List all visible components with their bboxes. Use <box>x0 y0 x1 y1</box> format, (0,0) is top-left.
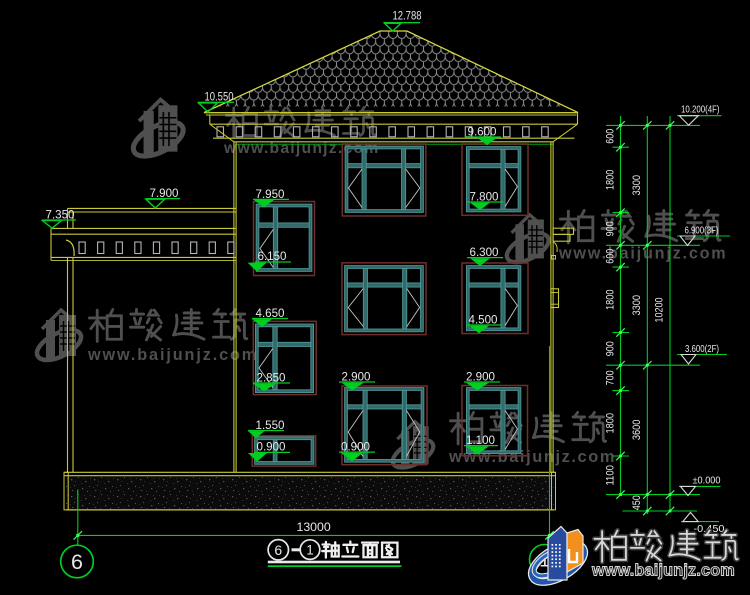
svg-text:6: 6 <box>71 550 83 574</box>
svg-text:1800: 1800 <box>605 170 617 191</box>
svg-text:6.900(3F): 6.900(3F) <box>685 226 719 237</box>
svg-text:10200: 10200 <box>654 297 666 322</box>
svg-text:700: 700 <box>605 370 617 385</box>
svg-text:3.600(2F): 3.600(2F) <box>685 344 719 355</box>
svg-text:7.950: 7.950 <box>256 187 285 201</box>
svg-text:www.baijunjz.com: www.baijunjz.com <box>591 562 735 580</box>
svg-text:13000: 13000 <box>297 520 331 534</box>
svg-text:900: 900 <box>605 221 617 236</box>
svg-text:7.900: 7.900 <box>150 186 179 200</box>
svg-text:www.baijunjz.com: www.baijunjz.com <box>87 346 258 364</box>
svg-text:6: 6 <box>274 542 282 558</box>
svg-text:7.800: 7.800 <box>470 189 499 203</box>
svg-text:3600: 3600 <box>631 420 643 441</box>
svg-text:12.788: 12.788 <box>393 9 422 23</box>
svg-text:4.500: 4.500 <box>469 312 498 326</box>
svg-text:3300: 3300 <box>631 295 643 316</box>
svg-text:600: 600 <box>605 129 617 144</box>
svg-text:1.100: 1.100 <box>466 433 495 447</box>
svg-text:3300: 3300 <box>631 175 643 196</box>
svg-text:www.baijunjz.com: www.baijunjz.com <box>558 245 728 263</box>
svg-text:10.200(4F): 10.200(4F) <box>681 105 720 116</box>
svg-text:2.900: 2.900 <box>466 369 495 383</box>
svg-text:1800: 1800 <box>605 413 617 434</box>
svg-text:450: 450 <box>631 495 643 510</box>
svg-text:1.550: 1.550 <box>256 418 285 432</box>
svg-text:0.900: 0.900 <box>341 439 370 453</box>
svg-text:10.550: 10.550 <box>205 89 234 103</box>
svg-text:1: 1 <box>306 543 314 558</box>
svg-text:±0.000: ±0.000 <box>693 475 721 486</box>
svg-text:4.650: 4.650 <box>256 306 285 320</box>
svg-text:6.150: 6.150 <box>258 249 287 263</box>
svg-text:1800: 1800 <box>605 289 617 310</box>
svg-text:900: 900 <box>605 341 617 356</box>
svg-text:1100: 1100 <box>605 465 617 486</box>
svg-text:7.350: 7.350 <box>46 207 75 221</box>
svg-text:6.300: 6.300 <box>470 245 499 259</box>
svg-text:0.900: 0.900 <box>257 440 286 454</box>
svg-text:9.600: 9.600 <box>468 124 497 138</box>
svg-text:2.900: 2.900 <box>342 369 371 383</box>
svg-text:2.850: 2.850 <box>257 370 286 384</box>
svg-text:600: 600 <box>605 249 617 264</box>
